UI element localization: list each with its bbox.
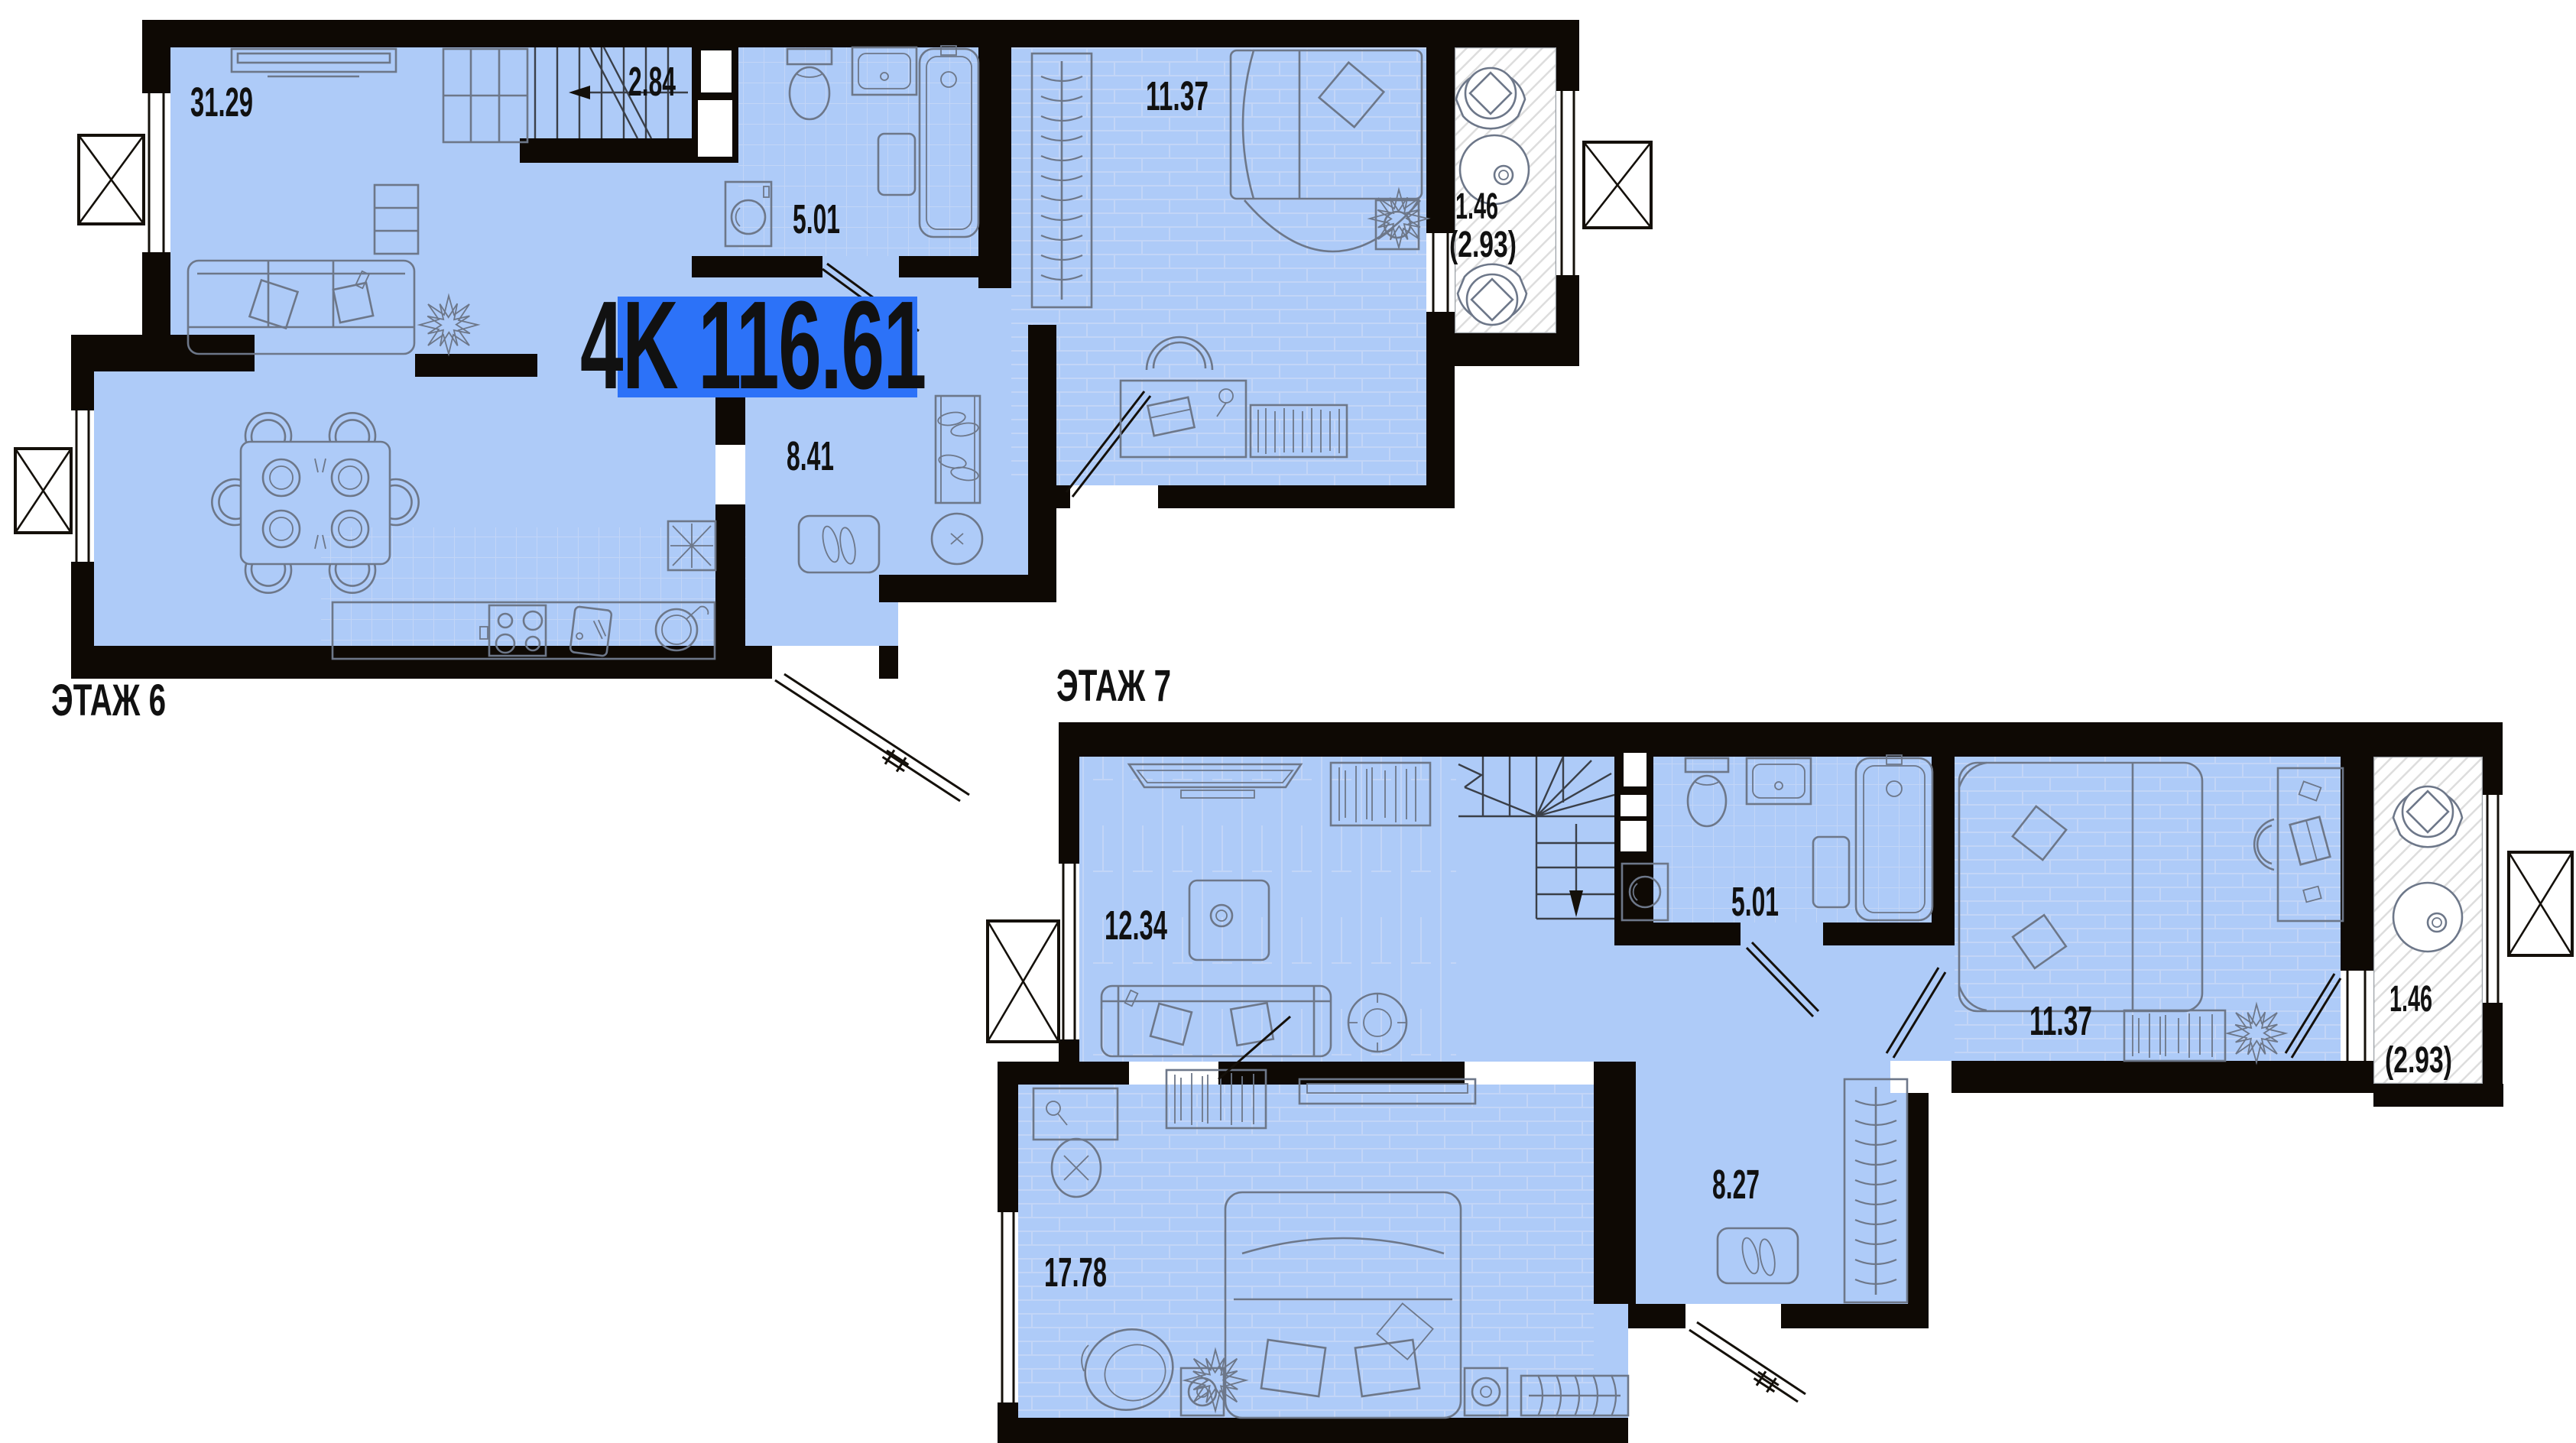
floor6-bedroom-area-label: 11.37 [1146, 73, 1209, 119]
floor7-hallway-area-label: 8.27 [1712, 1162, 1760, 1208]
apartment-badge: 4K 116.61 [580, 275, 926, 415]
floor6-plan: 4K 116.61 31.29 2.84 5.01 11.37 8.41 1.4… [15, 20, 1651, 801]
floor7-bedroom-area-label: 11.37 [2029, 998, 2092, 1044]
floor7-bedroom-parquet [1955, 757, 2341, 1061]
floor7-title: ЭТАЖ 7 [1056, 661, 1171, 711]
floor6-bathroom-area-label: 5.01 [793, 196, 840, 242]
floor7-master-area-label: 17.78 [1044, 1250, 1107, 1295]
floor7-plan: 12.34 5.01 11.37 17.78 8.27 1.46 (2.93) … [988, 661, 2572, 1443]
floor6-balcony-total-area-label: (2.93) [1449, 225, 1517, 265]
apartment-type-area-label: 4K 116.61 [580, 275, 926, 415]
floor6-tv [232, 49, 396, 76]
floor7-balcony-area-label: 1.46 [2389, 979, 2432, 1020]
floor7-bathroom-area-label: 5.01 [1731, 879, 1779, 925]
floor6-fridge [668, 521, 715, 570]
floor6-bedroom-parquet [1011, 47, 1426, 485]
floor6-living-area-label: 31.29 [190, 79, 253, 125]
floor6-hallway-area-label: 8.41 [787, 433, 834, 479]
floor7-entrance-door [1689, 1322, 1805, 1402]
floor7-balcony-total-area-label: (2.93) [2385, 1040, 2452, 1081]
floorplan-page: 4K 116.61 31.29 2.84 5.01 11.37 8.41 1.4… [0, 0, 2576, 1443]
floor7-living-area-label: 12.34 [1105, 903, 1167, 948]
floor6-stairs-area-label: 2.84 [628, 59, 676, 105]
floor6-balcony-area-label: 1.46 [1455, 186, 1498, 227]
floor6-entrance-door [775, 674, 969, 801]
floor6-title: ЭТАЖ 6 [51, 676, 166, 725]
floorplan-drawing: 4K 116.61 31.29 2.84 5.01 11.37 8.41 1.4… [0, 0, 2576, 1443]
